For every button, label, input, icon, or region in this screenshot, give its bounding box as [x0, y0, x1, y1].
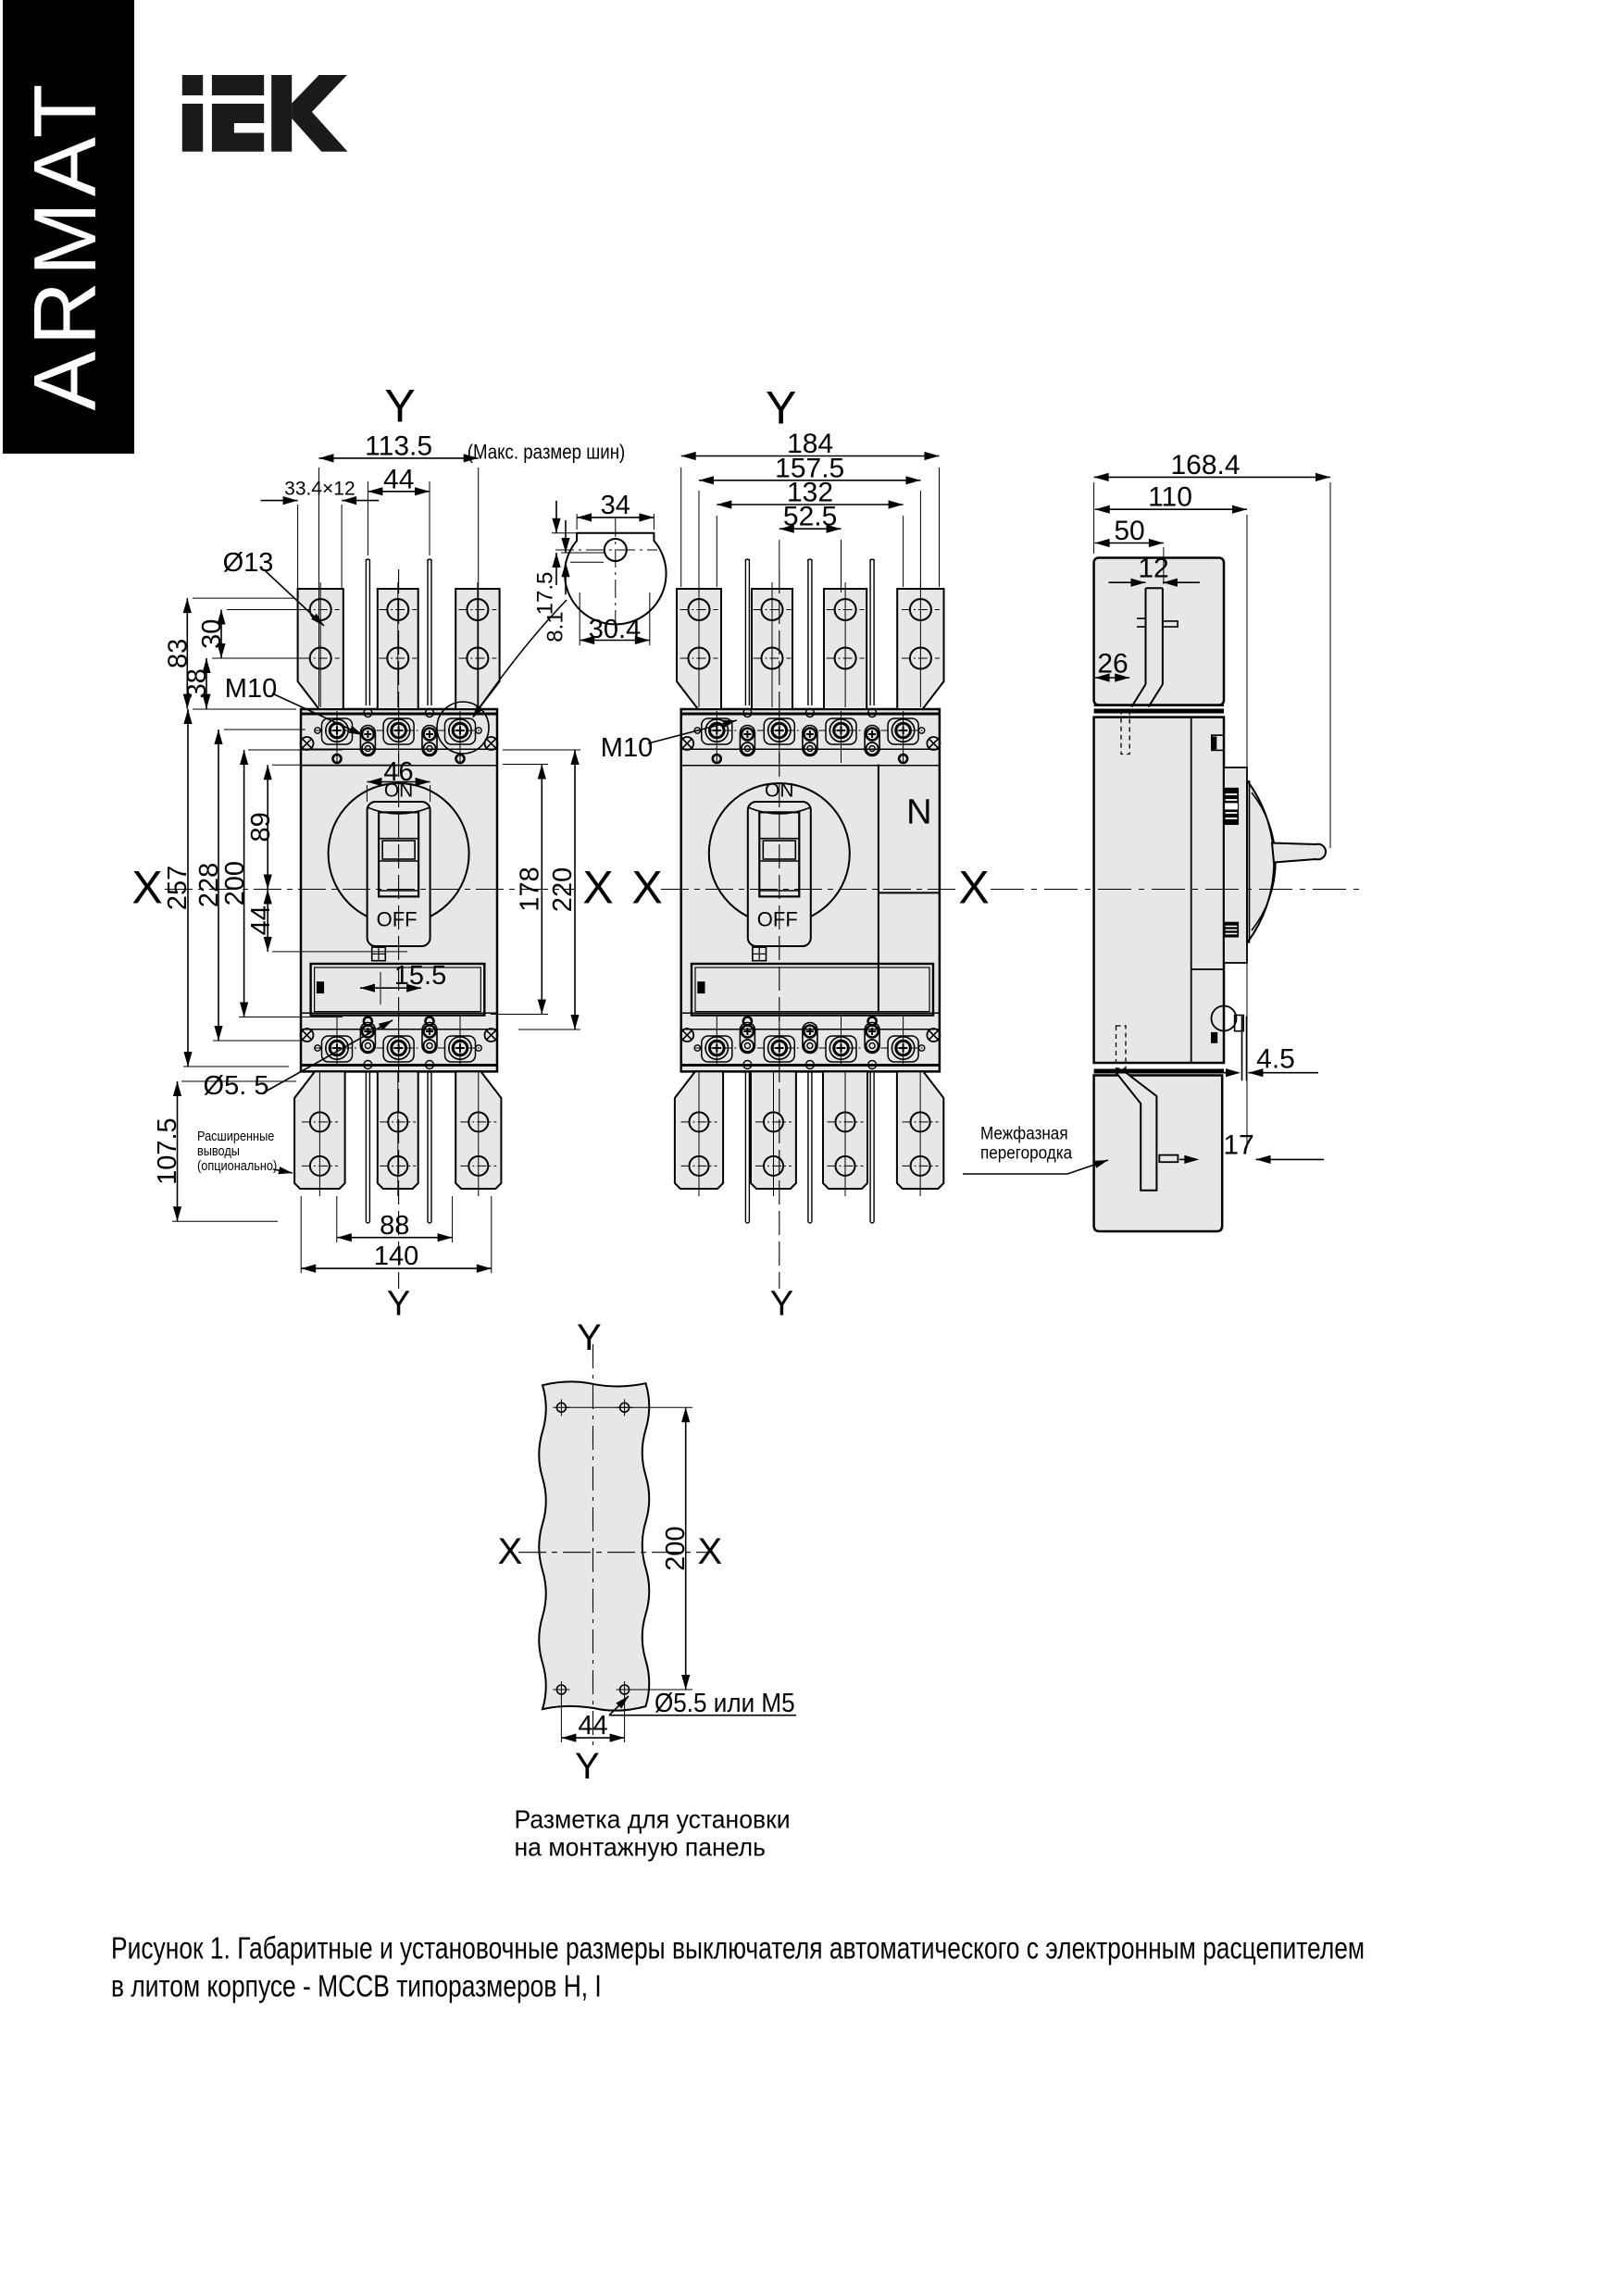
svg-text:Рисунок 1. Габаритные и устано: Рисунок 1. Габаритные и установочные раз… — [111, 1932, 1365, 1965]
svg-text:Межфазная: Межфазная — [980, 1124, 1068, 1143]
svg-text:8.1: 8.1 — [542, 611, 567, 642]
svg-text:17.5: 17.5 — [532, 572, 557, 616]
svg-text:46: 46 — [383, 757, 413, 787]
svg-text:Y: Y — [384, 381, 415, 432]
svg-text:X: X — [131, 862, 162, 914]
svg-text:33.4×12: 33.4×12 — [284, 478, 355, 499]
svg-text:X: X — [958, 862, 989, 914]
svg-text:83: 83 — [163, 639, 193, 668]
svg-text:Ø5. 5: Ø5. 5 — [204, 1071, 269, 1101]
svg-text:ARMAT: ARMAT — [16, 79, 115, 411]
svg-text:(Макс. размер шин): (Макс. размер шин) — [468, 442, 625, 464]
svg-text:200: 200 — [661, 1527, 691, 1571]
svg-text:X: X — [498, 1531, 523, 1572]
svg-text:в литом корпусе - MCCB типораз: в литом корпусе - MCCB типоразмеров H, I — [111, 1970, 602, 2003]
svg-text:X: X — [697, 1531, 722, 1572]
svg-text:X: X — [631, 862, 662, 914]
svg-text:88: 88 — [380, 1211, 409, 1241]
svg-text:12: 12 — [1138, 554, 1168, 584]
svg-text:M10: M10 — [601, 733, 653, 763]
svg-text:30.4: 30.4 — [589, 615, 641, 644]
svg-text:113.5: 113.5 — [365, 430, 432, 461]
svg-text:OFF: OFF — [377, 908, 418, 931]
svg-text:M10: M10 — [225, 674, 277, 704]
svg-text:107.5: 107.5 — [153, 1117, 182, 1185]
svg-text:38: 38 — [182, 668, 212, 698]
svg-text:Y: Y — [575, 1746, 600, 1787]
svg-text:N: N — [906, 792, 931, 831]
svg-text:44: 44 — [246, 905, 276, 935]
svg-text:X: X — [582, 862, 613, 914]
svg-text:OFF: OFF — [757, 908, 798, 931]
svg-text:200: 200 — [220, 861, 250, 905]
svg-text:Y: Y — [766, 382, 796, 434]
svg-text:выводы: выводы — [197, 1142, 240, 1158]
svg-text:17: 17 — [1223, 1130, 1253, 1161]
svg-text:26: 26 — [1097, 649, 1128, 680]
svg-text:перегородка: перегородка — [980, 1143, 1073, 1163]
svg-text:257: 257 — [163, 866, 193, 910]
svg-text:4.5: 4.5 — [1256, 1044, 1295, 1075]
svg-text:110: 110 — [1148, 482, 1192, 513]
svg-text:50: 50 — [1114, 516, 1144, 546]
svg-text:Ø13: Ø13 — [223, 548, 274, 578]
svg-text:140: 140 — [374, 1242, 418, 1271]
svg-text:30: 30 — [197, 619, 227, 649]
svg-text:44: 44 — [383, 464, 414, 494]
svg-text:Разметка для установки: Разметка для установки — [515, 1804, 791, 1834]
svg-text:Ø5.5 или M5: Ø5.5 или M5 — [655, 1688, 795, 1718]
svg-text:Y: Y — [770, 1284, 793, 1323]
svg-text:Y: Y — [577, 1317, 602, 1358]
svg-text:на монтажную панель: на монтажную панель — [515, 1832, 767, 1862]
svg-text:34: 34 — [601, 491, 630, 520]
svg-text:Y: Y — [387, 1284, 410, 1323]
svg-text:(опционально): (опционально) — [197, 1157, 277, 1173]
svg-text:178: 178 — [516, 867, 545, 911]
svg-text:168.4: 168.4 — [1170, 450, 1240, 480]
svg-text:89: 89 — [246, 812, 276, 842]
svg-text:15.5: 15.5 — [394, 961, 446, 991]
svg-text:44: 44 — [578, 1711, 607, 1741]
svg-text:Расширенные: Расширенные — [197, 1128, 275, 1143]
svg-text:52.5: 52.5 — [783, 502, 837, 532]
svg-text:220: 220 — [548, 867, 578, 912]
